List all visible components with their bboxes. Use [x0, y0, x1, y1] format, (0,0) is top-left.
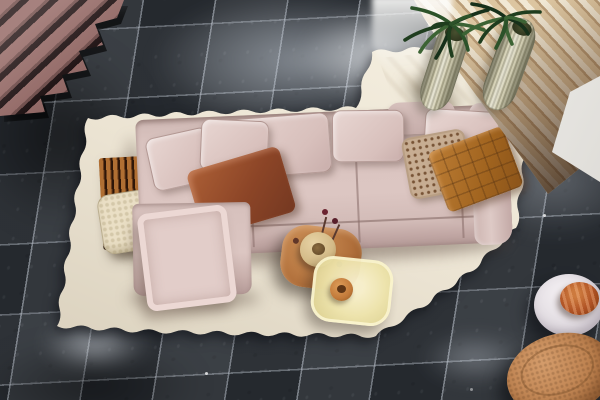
grass-plants — [380, 0, 600, 84]
flanged-pillow-on-chaise — [136, 204, 237, 312]
table-detail-dot — [293, 237, 300, 244]
living-room-photo — [0, 0, 600, 400]
plant-leaf — [451, 24, 468, 50]
back-cushion — [332, 110, 404, 163]
dried-flower-bud — [322, 209, 328, 215]
plant-leaf — [412, 8, 451, 24]
dried-flower-bud — [332, 218, 338, 224]
amber-mini-vase — [330, 278, 353, 301]
rust-knot-cushion — [560, 282, 599, 315]
